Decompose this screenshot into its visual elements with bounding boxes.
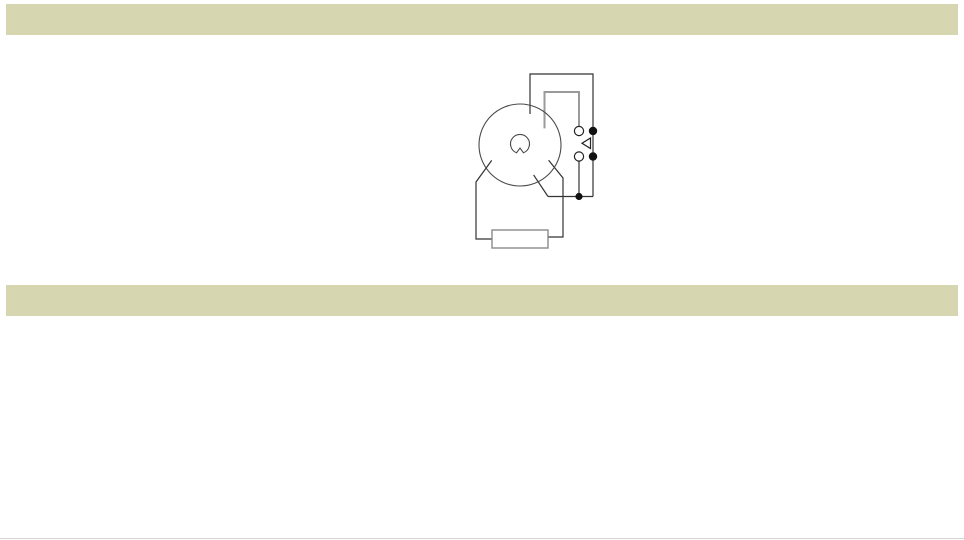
- wire-pin8: [534, 175, 548, 197]
- wire-pin6-to-contact: [545, 92, 580, 128]
- page-bottom-divider: [0, 538, 964, 539]
- timing-chart-heading: [6, 285, 958, 316]
- source-box: [492, 230, 548, 248]
- contact-arm-triangle-icon: [582, 138, 591, 149]
- socket-outer-circle: [479, 104, 561, 186]
- wire-pin7-to-plus: [548, 160, 563, 237]
- junction-dot-mid: [589, 152, 597, 160]
- junction-dot-top: [589, 127, 597, 135]
- timing-chart: [320, 390, 664, 515]
- connection-heading: [6, 4, 958, 35]
- connection-diagram: [430, 55, 670, 270]
- contact-terminal-top: [574, 126, 583, 135]
- socket-keyway-hole: [510, 134, 529, 152]
- junction-dot-bottom: [575, 193, 582, 200]
- contact-terminal-bottom: [574, 152, 583, 161]
